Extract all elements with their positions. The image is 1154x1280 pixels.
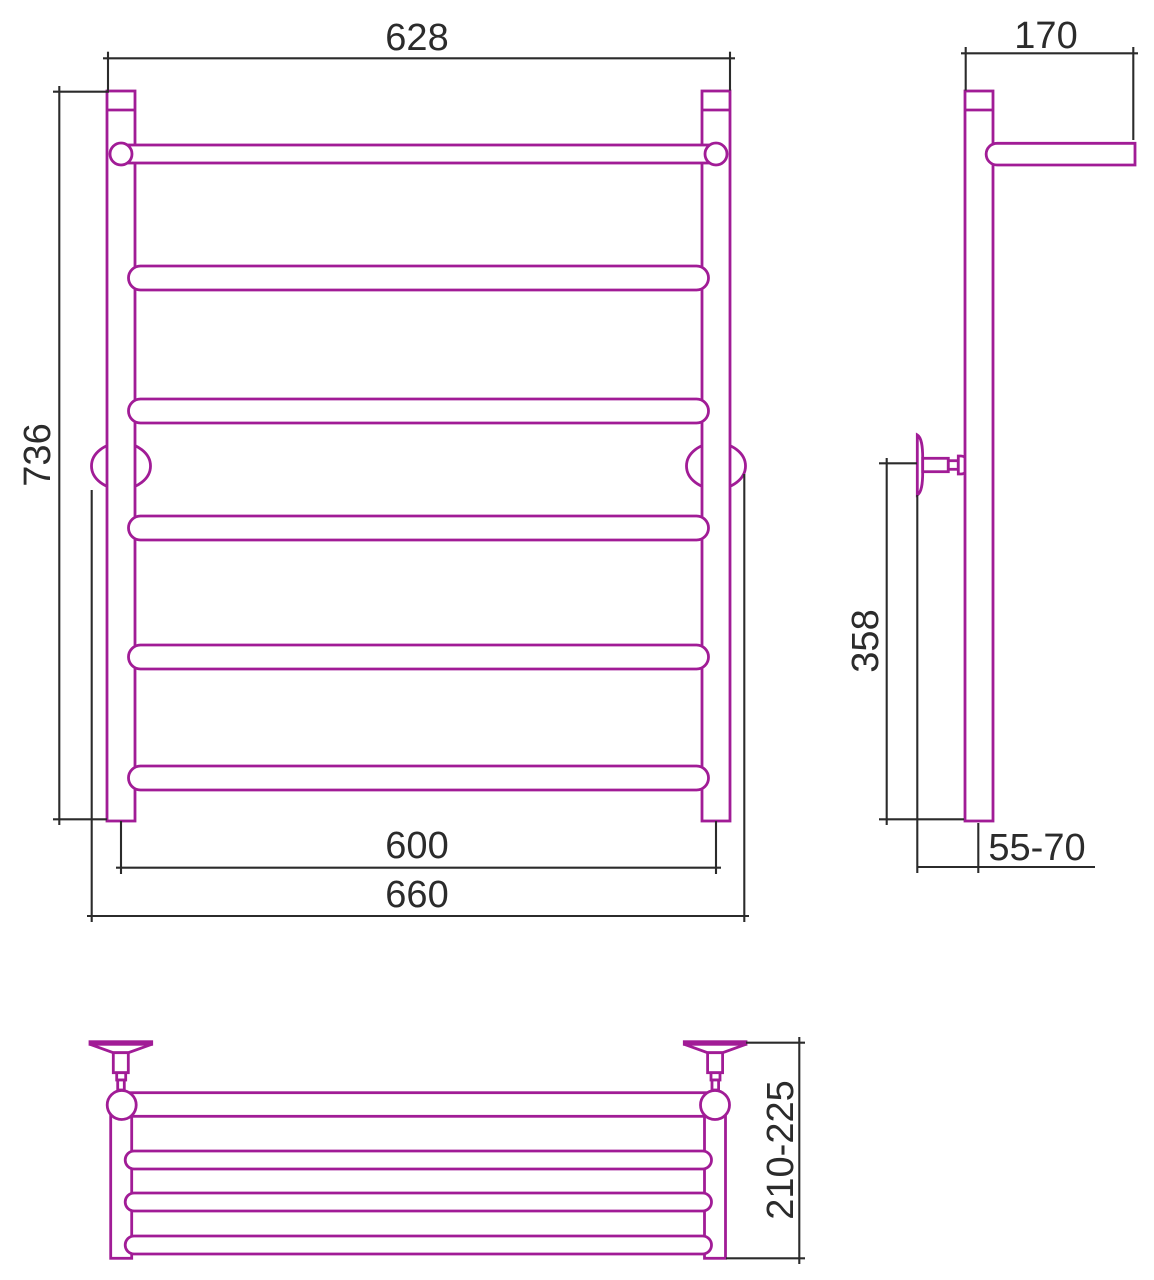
bracket-flange-plate [684, 1042, 746, 1045]
wall-bracket-bulges [92, 443, 746, 489]
side-post [965, 91, 993, 821]
left-post-section [107, 1091, 136, 1120]
side-shelf-bar [986, 143, 1135, 165]
cross-bar [129, 516, 709, 540]
cross-bar [129, 645, 709, 669]
right-post-section [701, 1091, 730, 1120]
side-view [917, 91, 1135, 821]
bracket-flange-plate [90, 1042, 152, 1045]
dim-label-600: 600 [385, 825, 448, 867]
dim-label-55-70: 55-70 [988, 827, 1085, 869]
shelf-bar [125, 1151, 711, 1169]
cross-bar [129, 266, 709, 290]
dim-wall-clearance: 55-70 [917, 495, 1095, 873]
dim-depth-overall: 210-225 [726, 1037, 805, 1264]
cross-bars [121, 145, 716, 790]
front-view [92, 91, 746, 821]
rear-shelf-bar [122, 1093, 715, 1117]
left-side-rail [111, 1108, 132, 1258]
bracket-stem [923, 458, 949, 471]
right-post [702, 91, 730, 821]
dim-label-170: 170 [1014, 15, 1077, 57]
shelf-bar [125, 1193, 711, 1211]
right-side-rail [705, 1108, 726, 1258]
top-shelf-bar [121, 145, 716, 163]
dim-label-210-225: 210-225 [760, 1080, 802, 1219]
drawing-page: 628 736 600 660 [0, 0, 1154, 1280]
dim-label-358: 358 [845, 609, 887, 672]
bracket-neck [118, 1080, 125, 1090]
dim-height-lower: 358 [845, 458, 964, 825]
top-view [90, 1042, 746, 1259]
top-left-bracket [90, 1042, 152, 1090]
right-ball-joint [705, 143, 727, 165]
bracket-stem [113, 1053, 128, 1073]
bracket-stem [708, 1053, 723, 1073]
bracket-neck [712, 1080, 719, 1090]
posts [107, 91, 730, 821]
left-post [107, 91, 135, 821]
towel-rail-technical-drawing: 628 736 600 660 [0, 0, 1154, 1280]
cross-bar [129, 399, 709, 423]
top-right-bracket [684, 1042, 746, 1090]
left-ball-joint [110, 143, 132, 165]
dim-width-top: 628 [103, 17, 735, 91]
cross-bar [129, 766, 709, 790]
dim-width-axes: 600 [116, 821, 721, 874]
bracket-neck [948, 461, 958, 470]
dim-label-660: 660 [385, 874, 448, 916]
side-wall-bracket [917, 435, 968, 495]
shelf-bar [125, 1236, 711, 1254]
dim-label-736: 736 [17, 423, 59, 486]
dim-label-628: 628 [385, 17, 448, 59]
